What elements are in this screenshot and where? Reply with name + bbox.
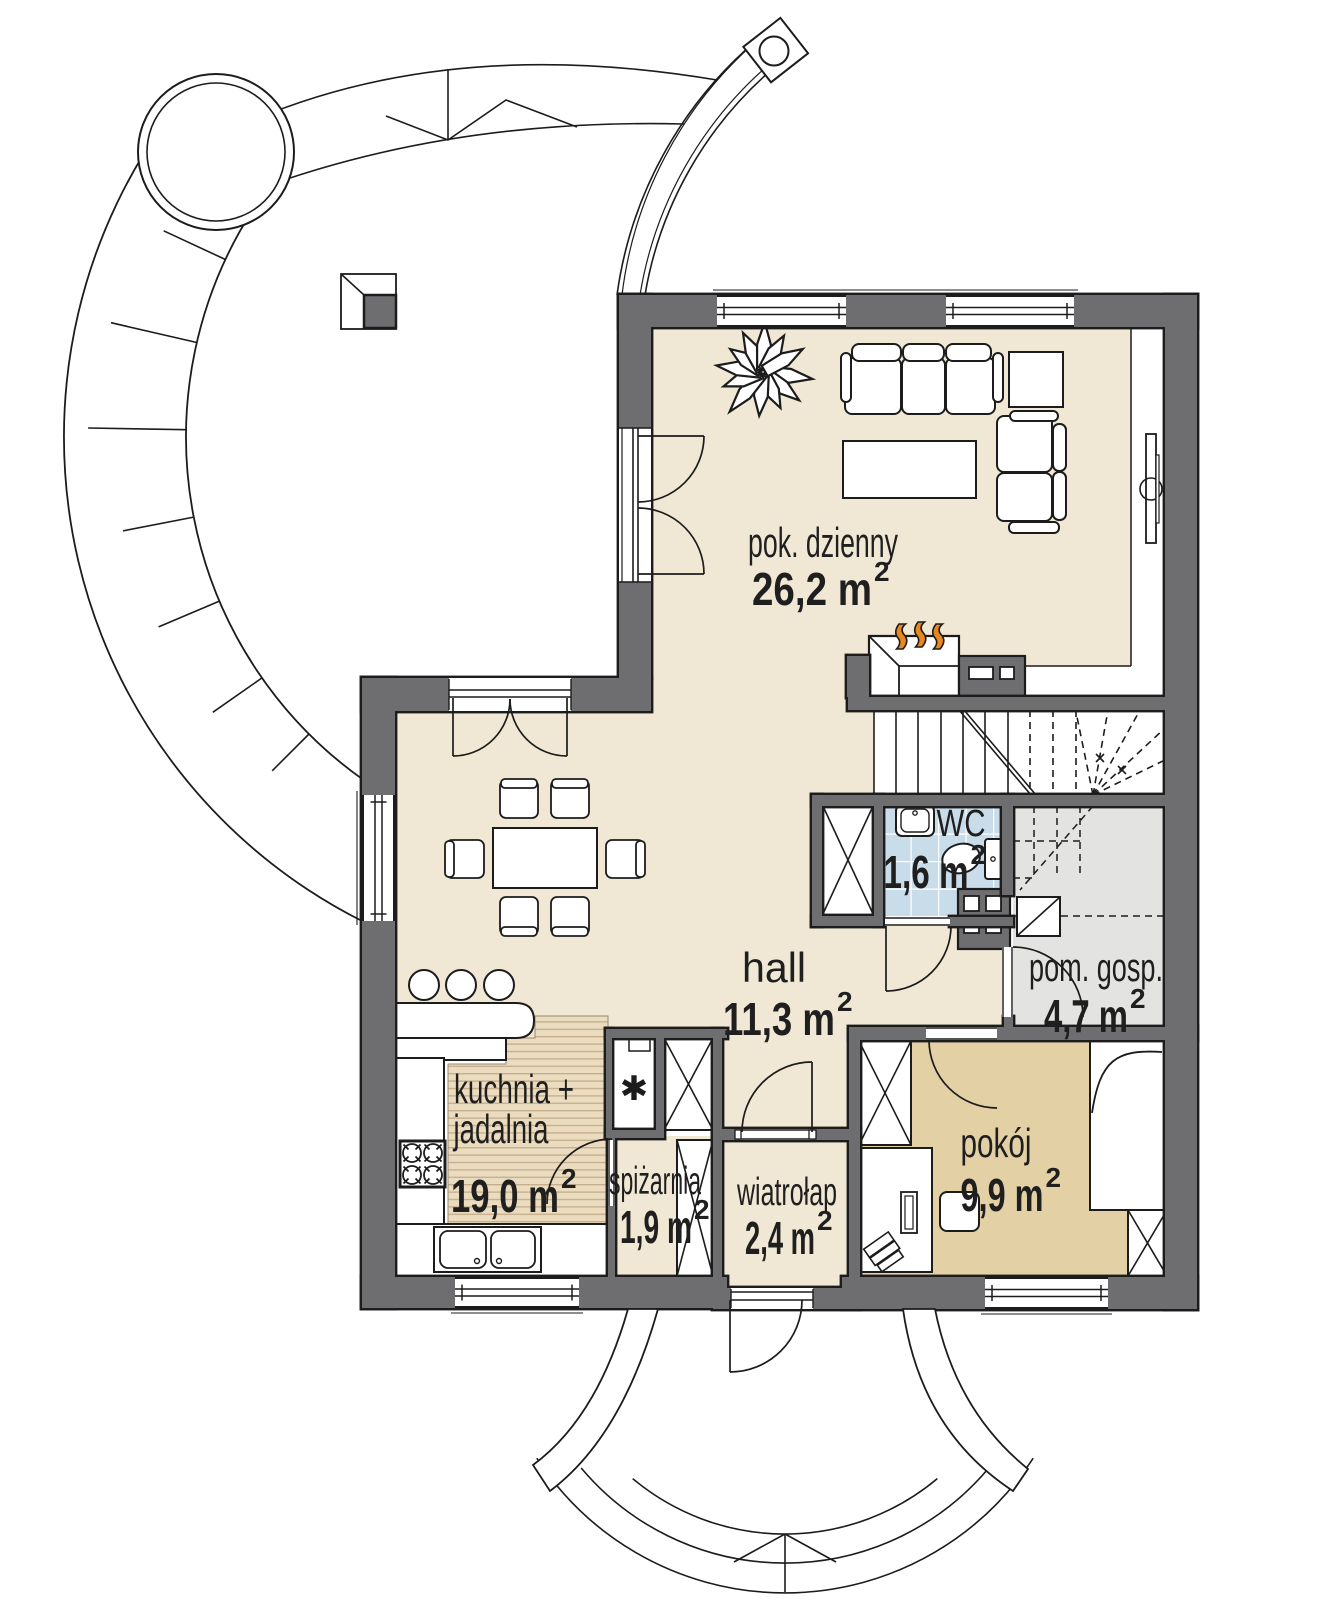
svg-text:2: 2 (837, 986, 853, 1017)
svg-text:pokój: pokój (961, 1120, 1032, 1166)
svg-text:2: 2 (1130, 983, 1146, 1014)
svg-text:1,9 m: 1,9 m (620, 1201, 692, 1253)
svg-text:hall: hall (742, 944, 806, 991)
svg-text:jadalnia: jadalnia (453, 1106, 549, 1152)
svg-text:11,3 m: 11,3 m (723, 993, 835, 1045)
svg-text:4,7 m: 4,7 m (1044, 990, 1128, 1042)
svg-text:✱: ✱ (620, 1070, 649, 1108)
svg-text:19,0 m: 19,0 m (451, 1170, 559, 1222)
svg-text:2: 2 (561, 1163, 577, 1194)
svg-text:9,9 m: 9,9 m (961, 1169, 1044, 1221)
svg-text:2,4 m: 2,4 m (745, 1212, 815, 1264)
svg-text:2: 2 (694, 1194, 710, 1225)
svg-text:2: 2 (1046, 1162, 1062, 1193)
svg-text:2: 2 (874, 556, 890, 587)
svg-text:2: 2 (971, 839, 987, 870)
svg-text:1,6 m: 1,6 m (884, 846, 969, 898)
svg-text:26,2 m: 26,2 m (752, 563, 872, 615)
svg-text:2: 2 (817, 1205, 833, 1236)
svg-text:spiżarnia: spiżarnia (609, 1160, 701, 1203)
